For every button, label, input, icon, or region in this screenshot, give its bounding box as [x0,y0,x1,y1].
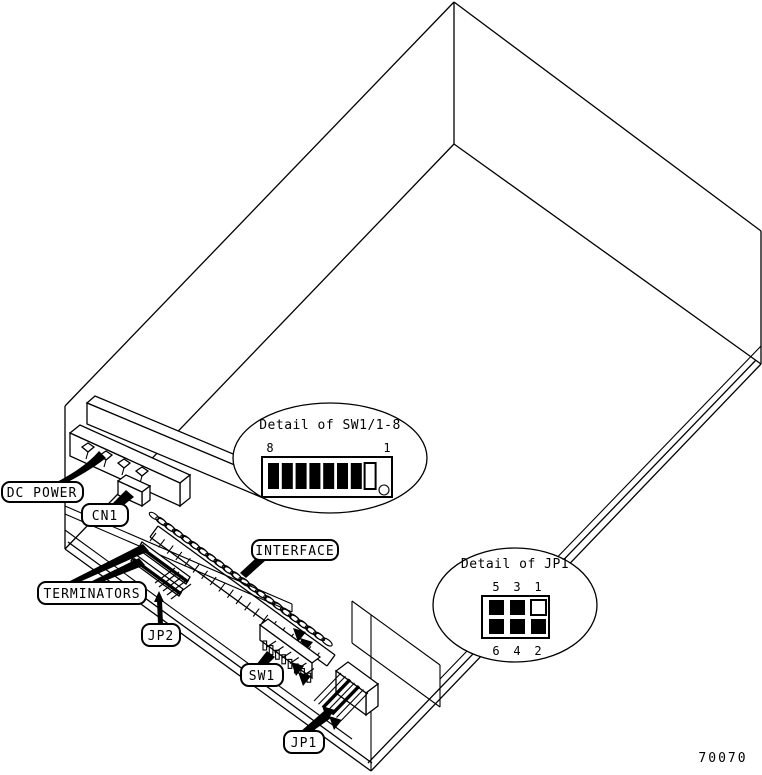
callout-interface-label: INTERFACE [255,544,334,559]
detail-jp1-label-4: 4 [513,644,520,658]
figure-number: 70070 [698,751,747,766]
jp1-detail-pin-3 [510,600,525,615]
callout-terminators: TERMINATORS [38,544,149,604]
sw1-detail-switch-7 [282,463,293,489]
jp1-detail-pin-4 [510,619,525,634]
callout-jp1-label: JP1 [291,736,317,751]
detail-jp1-label-6: 6 [492,644,499,658]
jp1-jumper [314,601,440,771]
sw1-detail-switch-3 [337,463,348,489]
callout-cn1-label: CN1 [92,509,118,524]
drive-diagram: Detail of SW1/1-8 8 1 Detail of JP1 5 3 … [0,0,762,775]
callout-sw1-label: SW1 [249,669,275,684]
sw1-detail-switch-4 [323,463,334,489]
callout-dc-power-label: DC POWER [7,486,78,501]
callout-cn1: CN1 [82,490,134,526]
detail-sw1-callout: Detail of SW1/1-8 8 1 [233,403,427,513]
detail-sw1-title: Detail of SW1/1-8 [259,418,401,433]
callout-sw1: SW1 [241,651,283,686]
detail-jp1-callout: Detail of JP1 5 3 1 6 4 2 [433,548,597,662]
figure-canvas: Detail of SW1/1-8 8 1 Detail of JP1 5 3 … [0,0,762,775]
detail-jp1-label-2: 2 [534,644,541,658]
callout-jp1: JP1 [284,711,331,753]
sw1-detail-switch-8 [268,463,279,489]
callout-interface: INTERFACE [240,540,338,578]
jp1-detail-pin-6 [489,619,504,634]
sw1-detail-switch-5 [309,463,320,489]
sw1-detail-switch-6 [296,463,307,489]
detail-sw1-right-label: 1 [383,441,390,455]
jp1-detail-pin-1 [531,600,546,615]
drive-outline [65,2,761,771]
callout-jp2-label: JP2 [148,629,174,644]
sw1-detail-switch-1 [365,463,376,489]
jp1-detail-pin-2 [531,619,546,634]
detail-jp1-title: Detail of JP1 [461,557,569,572]
detail-sw1-left-label: 8 [266,441,273,455]
detail-jp1-label-3: 3 [513,580,520,594]
detail-jp1-label-5: 5 [492,580,499,594]
detail-jp1-label-1: 1 [534,580,541,594]
jp1-detail-pin-5 [489,600,504,615]
sw1-detail-switch-2 [351,463,362,489]
callout-terminators-label: TERMINATORS [43,587,140,602]
